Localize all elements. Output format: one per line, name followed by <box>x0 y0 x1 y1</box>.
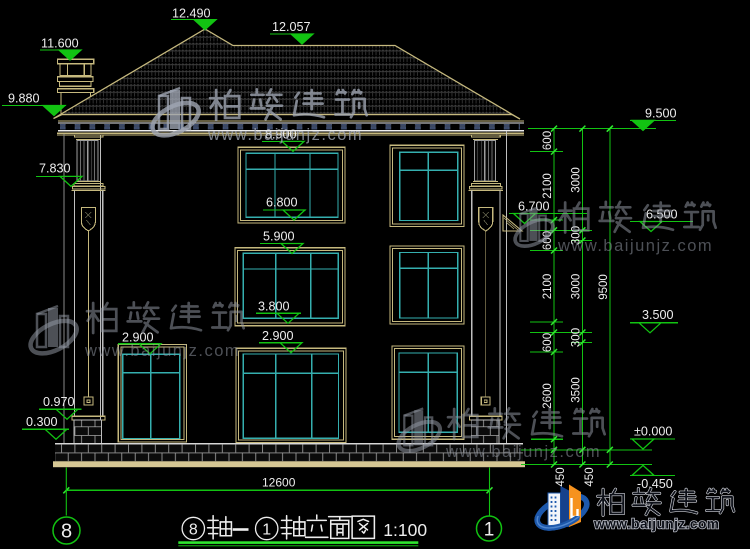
svg-text:1: 1 <box>262 521 271 538</box>
svg-text:2.900: 2.900 <box>262 329 294 343</box>
svg-text:1: 1 <box>484 520 495 541</box>
svg-text:www.baijunjz.com: www.baijunjz.com <box>557 237 713 255</box>
svg-text:8: 8 <box>189 521 198 538</box>
svg-text:9.880: 9.880 <box>8 92 40 106</box>
svg-text:-0.450: -0.450 <box>637 477 673 491</box>
svg-text:12600: 12600 <box>262 476 296 490</box>
svg-text:600: 600 <box>542 333 554 352</box>
svg-text:9500: 9500 <box>598 274 610 300</box>
svg-text:3.800: 3.800 <box>258 300 290 314</box>
svg-text:12.057: 12.057 <box>272 20 311 34</box>
svg-text:www.baijunjz.com: www.baijunjz.com <box>84 342 240 360</box>
svg-text:www.baijunjz.com: www.baijunjz.com <box>445 443 601 461</box>
svg-text:3000: 3000 <box>570 167 582 193</box>
svg-text:6.800: 6.800 <box>266 196 298 210</box>
svg-text:450: 450 <box>555 467 567 486</box>
svg-text:600: 600 <box>542 131 554 150</box>
svg-text:5.900: 5.900 <box>263 230 295 244</box>
svg-text:7.830: 7.830 <box>39 162 71 176</box>
svg-text:2600: 2600 <box>542 383 554 409</box>
svg-text:0.300: 0.300 <box>26 415 58 429</box>
svg-text:2100: 2100 <box>542 274 554 300</box>
svg-text:8: 8 <box>61 521 72 543</box>
svg-text:1:100: 1:100 <box>383 520 427 540</box>
svg-text:±0.000: ±0.000 <box>634 424 672 438</box>
svg-text:2100: 2100 <box>542 173 554 199</box>
svg-text:3000: 3000 <box>570 274 582 300</box>
svg-text:0.970: 0.970 <box>43 395 75 409</box>
svg-text:9.500: 9.500 <box>645 106 677 120</box>
svg-text:300: 300 <box>570 328 582 347</box>
svg-text:www.baijunjz.com: www.baijunjz.com <box>593 517 719 532</box>
svg-text:12.490: 12.490 <box>172 7 211 21</box>
svg-text:www.baijunjz.com: www.baijunjz.com <box>207 126 363 144</box>
svg-text:3500: 3500 <box>570 377 582 403</box>
svg-text:450: 450 <box>584 467 596 486</box>
svg-text:3.500: 3.500 <box>642 308 674 322</box>
svg-text:11.600: 11.600 <box>41 37 79 51</box>
